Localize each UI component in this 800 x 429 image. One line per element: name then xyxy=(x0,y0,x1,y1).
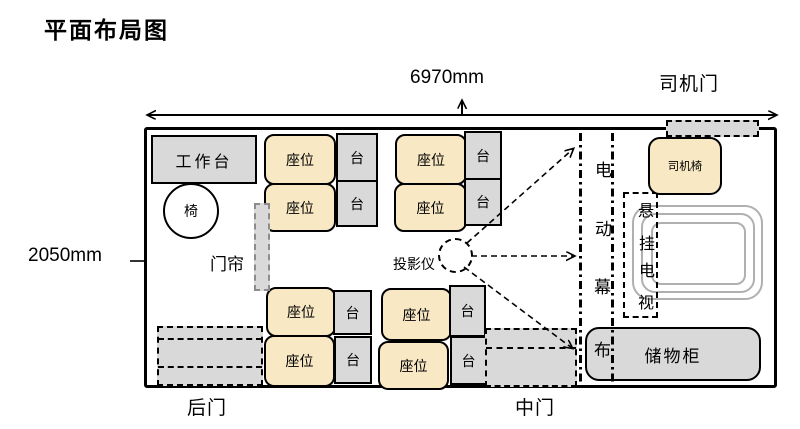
tv-text-char: 电 xyxy=(639,264,655,280)
driver-door-label: 司机门 xyxy=(659,69,719,96)
rear-door-label: 后门 xyxy=(187,393,227,420)
height-dimension-label: 2050mm xyxy=(28,245,102,267)
door-curtain-strip xyxy=(254,203,270,291)
middle-door-label: 中门 xyxy=(515,393,555,420)
middle-door-area xyxy=(485,328,577,387)
tv-text-char: 挂 xyxy=(639,237,655,253)
side-table: 台 xyxy=(464,178,502,226)
screen-text-char: 幕 xyxy=(594,279,611,296)
seat: 座位 xyxy=(381,288,452,341)
projector-symbol xyxy=(438,238,473,273)
floor-plan-diagram: 平面布局图 6970mm 司机门 2050mm 后门 中门 工作台 椅 门帘 座… xyxy=(0,0,800,429)
side-table: 台 xyxy=(336,180,378,227)
side-table: 台 xyxy=(333,290,372,335)
door-step-line xyxy=(486,347,576,349)
page-title: 平面布局图 xyxy=(44,11,169,45)
side-table: 台 xyxy=(336,133,378,182)
seat: 座位 xyxy=(264,183,336,232)
wheel-arch-ring-inner xyxy=(651,222,746,285)
seat: 座位 xyxy=(378,341,449,390)
seat: 座位 xyxy=(264,134,336,185)
width-dimension-label: 6970mm xyxy=(410,67,484,89)
side-table: 台 xyxy=(334,336,372,384)
rear-door-area xyxy=(157,326,263,386)
seat: 座位 xyxy=(394,183,467,232)
seat: 座位 xyxy=(395,134,467,185)
tv-text-char: 视 xyxy=(638,296,654,312)
workbench: 工作台 xyxy=(151,135,257,184)
side-table: 台 xyxy=(464,131,502,180)
door-step-line xyxy=(158,338,262,340)
door-curtain-label: 门帘 xyxy=(210,250,244,275)
seat: 座位 xyxy=(264,335,335,387)
driver-door-area xyxy=(666,120,759,137)
screen-text-char: 电 xyxy=(595,162,612,179)
driver-chair: 司机椅 xyxy=(648,137,722,195)
electric-screen-line xyxy=(579,133,582,385)
seat: 座位 xyxy=(266,287,336,337)
chair: 椅 xyxy=(163,183,219,239)
screen-text-char: 布 xyxy=(594,342,611,359)
screen-text-char: 动 xyxy=(595,221,612,238)
side-table: 台 xyxy=(450,336,487,385)
projector-label: 投影仪 xyxy=(393,254,435,274)
side-table: 台 xyxy=(449,285,486,337)
door-step-line xyxy=(158,366,262,368)
tv-text-char: 悬 xyxy=(638,204,654,220)
